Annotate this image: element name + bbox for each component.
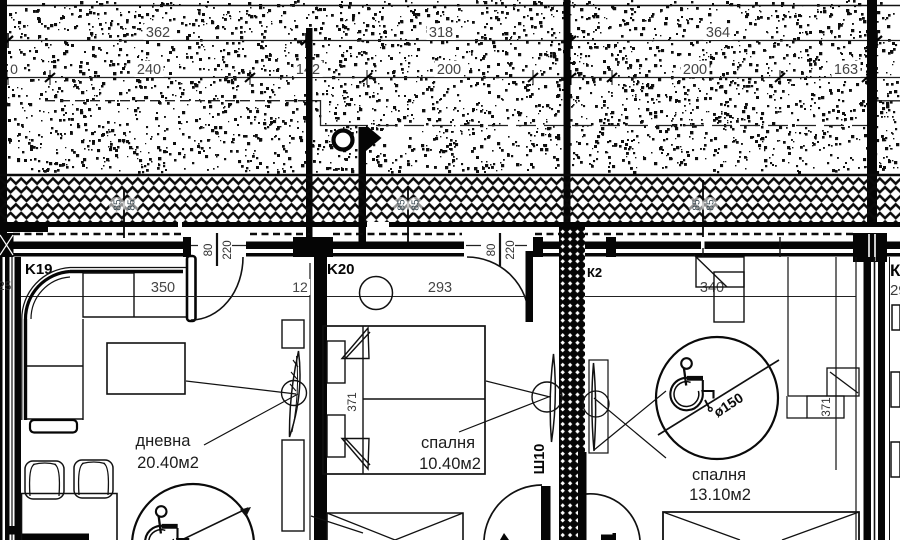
svg-text:350: 350	[151, 280, 175, 296]
svg-text:12: 12	[292, 279, 308, 295]
svg-text:220: 220	[222, 240, 234, 259]
svg-text:спалня: спалня	[421, 434, 475, 452]
svg-text:364: 364	[706, 25, 730, 41]
svg-text:318: 318	[429, 25, 453, 41]
svg-text:85: 85	[127, 199, 138, 211]
svg-text:200: 200	[437, 62, 461, 78]
svg-text:85: 85	[706, 199, 717, 211]
svg-text:K19: K19	[25, 261, 53, 278]
svg-text:200: 200	[683, 62, 707, 78]
svg-text:20.40м2: 20.40м2	[137, 454, 199, 472]
svg-text:220: 220	[505, 240, 517, 259]
svg-text:80: 80	[486, 244, 498, 257]
svg-text:Ш10: Ш10	[532, 444, 548, 475]
svg-text:371: 371	[347, 392, 359, 411]
svg-text:29: 29	[890, 282, 900, 299]
svg-text:240: 240	[137, 62, 161, 78]
svg-text:85: 85	[692, 199, 703, 211]
svg-text:362: 362	[146, 25, 170, 41]
svg-text:80: 80	[203, 244, 215, 257]
svg-text:0: 0	[10, 61, 18, 77]
svg-text:13.10м2: 13.10м2	[689, 486, 751, 504]
svg-text:85: 85	[397, 199, 408, 211]
svg-text:85: 85	[411, 199, 422, 211]
svg-text:163: 163	[834, 62, 858, 78]
svg-text:10.40м2: 10.40м2	[419, 455, 481, 473]
svg-text:К2: К2	[587, 265, 602, 280]
svg-text:293: 293	[428, 280, 452, 296]
svg-text:спалня: спалня	[692, 466, 746, 484]
svg-text:371: 371	[821, 397, 833, 416]
svg-text:25: 25	[0, 279, 12, 293]
svg-text:85: 85	[113, 199, 124, 211]
svg-text:340: 340	[700, 280, 724, 296]
svg-text:К2: К2	[890, 261, 900, 280]
svg-text:K20: K20	[327, 261, 355, 278]
svg-text:дневна: дневна	[136, 432, 192, 450]
